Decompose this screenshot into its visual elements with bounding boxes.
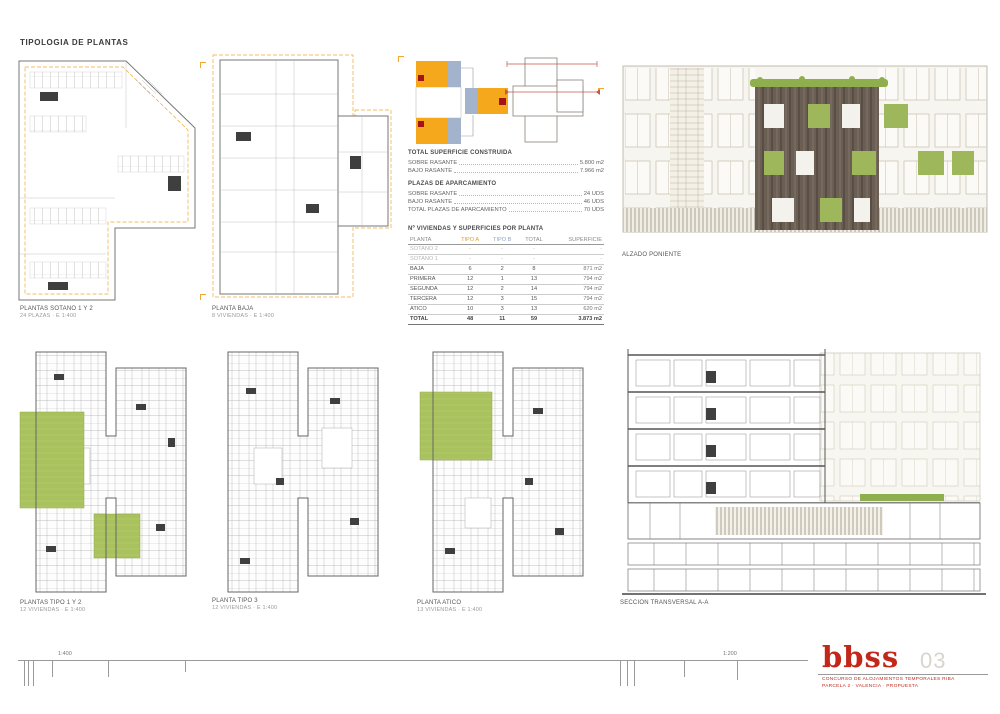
caption-tipo3-sub: 12 VIVIENDAS · E 1:400	[212, 605, 277, 612]
stair-core	[40, 92, 58, 101]
stair-core	[168, 176, 181, 191]
scale-bar-line	[18, 660, 808, 661]
caption-sotano: PLANTAS SOTANO 1 Y 2 24 PLAZAS · E 1:400	[20, 306, 93, 320]
crop-mark	[200, 62, 206, 68]
summary-line: SOBRE RASANTE5.800 m2	[408, 159, 604, 167]
logo-bbss: bbss	[822, 644, 899, 670]
roof-garden	[420, 392, 492, 460]
elevation-drawing	[622, 60, 988, 250]
caption-atico-label: PLANTA ATICO	[417, 600, 482, 607]
tipo3-plan-drawing	[210, 348, 388, 596]
project-line-2: PARCELA 2 · VALENCIA · PROPUESTA	[822, 684, 992, 690]
table-total-row: TOTAL4811593.873 m2	[408, 315, 604, 325]
caption-atico-sub: 13 VIVIENDAS · E 1:400	[417, 607, 482, 614]
caption-baja: PLANTA BAJA 8 VIVIENDAS · E 1:400	[212, 306, 274, 320]
caption-baja-label: PLANTA BAJA	[212, 306, 274, 313]
green-panel	[764, 151, 784, 175]
caption-tipo12-sub: 12 VIVIENDAS · E 1:400	[20, 607, 85, 614]
caption-alzado: ALZADO PONIENTE	[622, 252, 681, 259]
table-row: ATICO10313620 m2	[408, 305, 604, 315]
parking-heading: PLAZAS DE APARCAMIENTO	[408, 181, 604, 187]
table-title: Nº VIVIENDAS Y SUPERFICIES POR PLANTA	[408, 226, 604, 232]
sheet-number: 03	[920, 650, 946, 672]
architectural-sheet: { "page": { "title": "TIPOLOGIA DE PLANT…	[0, 0, 1000, 714]
caption-baja-sub: 8 VIVIENDAS · E 1:400	[212, 313, 274, 320]
key-plan	[505, 50, 600, 150]
caption-tipo12-label: PLANTAS TIPO 1 Y 2	[20, 600, 85, 607]
stair-core	[306, 204, 319, 213]
caption-tipo3: PLANTA TIPO 3 12 VIVIENDAS · E 1:400	[212, 598, 277, 612]
core-marker	[418, 75, 424, 81]
garden-court	[20, 412, 84, 508]
areas-table-block: Nº VIVIENDAS Y SUPERFICIES POR PLANTA PL…	[408, 226, 604, 325]
table-row: SOTANO 1----	[408, 255, 604, 265]
summary-line: SOBRE RASANTE24 UDS	[408, 190, 604, 198]
table-row: TERCERA12315794 m2	[408, 295, 604, 305]
scale-left-label: 1:400	[58, 651, 72, 657]
green-panel	[884, 104, 908, 128]
green-panel	[952, 151, 974, 175]
crop-mark	[200, 294, 206, 300]
project-line-1: CONCURSO DE ALOJAMIENTOS TEMPORALES RIBA	[822, 677, 992, 683]
table-row: SEGUNDA12214794 m2	[408, 285, 604, 295]
summary-heading: TOTAL SUPERFICIE CONSTRUIDA	[408, 150, 604, 156]
atico-plan-drawing	[415, 348, 593, 596]
table-header-row: PLANTA TIPO A TIPO B TOTAL SUPERFICIE	[408, 236, 604, 245]
basement-level	[628, 543, 980, 565]
caption-atico: PLANTA ATICO 13 VIVIENDAS · E 1:400	[417, 600, 482, 614]
areas-table: PLANTA TIPO A TIPO B TOTAL SUPERFICIE SO…	[408, 236, 604, 325]
scale-right-label: 1:200	[723, 651, 737, 657]
garden-court	[94, 514, 140, 558]
green-panel	[852, 151, 876, 175]
caption-seccion: SECCION TRANSVERSAL A-A	[620, 600, 709, 607]
summary-line: BAJO RASANTE7.966 m2	[408, 167, 604, 175]
table-row: PRIMERA12113794 m2	[408, 275, 604, 285]
sotano-plan-drawing	[18, 58, 196, 303]
summary-line: BAJO RASANTE46 UDS	[408, 198, 604, 206]
type-b-block	[448, 61, 461, 87]
type-b-block	[448, 118, 461, 144]
typology-diagram	[403, 56, 508, 146]
parking-grille	[715, 507, 883, 535]
baja-plan-drawing	[210, 52, 395, 302]
stair-core	[48, 282, 68, 290]
caption-seccion-label: SECCION TRANSVERSAL A-A	[620, 600, 709, 607]
type-b-block	[465, 88, 478, 114]
green-panel	[918, 151, 944, 175]
caption-alzado-label: ALZADO PONIENTE	[622, 252, 681, 259]
stair-core	[236, 132, 251, 141]
summary-line: TOTAL PLAZAS DE APARCAMIENTO70 UDS	[408, 206, 604, 214]
sheet-title: TIPOLOGIA DE PLANTAS	[20, 38, 128, 47]
caption-tipo3-label: PLANTA TIPO 3	[212, 598, 277, 605]
green-panel	[808, 104, 830, 128]
table-row: SOTANO 2----	[408, 245, 604, 255]
caption-sotano-label: PLANTAS SOTANO 1 Y 2	[20, 306, 93, 313]
podium-hedge	[860, 494, 944, 501]
core-marker	[418, 121, 424, 127]
caption-sotano-sub: 24 PLAZAS · E 1:400	[20, 313, 93, 320]
caption-tipo12: PLANTAS TIPO 1 Y 2 12 VIVIENDAS · E 1:40…	[20, 600, 85, 614]
green-panel	[820, 198, 842, 222]
summary-block: TOTAL SUPERFICIE CONSTRUIDA SOBRE RASANT…	[408, 150, 604, 214]
table-row: BAJA628871 m2	[408, 265, 604, 275]
roof-hedge	[750, 79, 888, 87]
tipo12-plan-drawing	[18, 348, 196, 596]
stair-core	[350, 156, 361, 169]
section-drawing	[620, 343, 988, 598]
basement-level	[628, 569, 980, 591]
titleblock-rule	[818, 674, 988, 675]
